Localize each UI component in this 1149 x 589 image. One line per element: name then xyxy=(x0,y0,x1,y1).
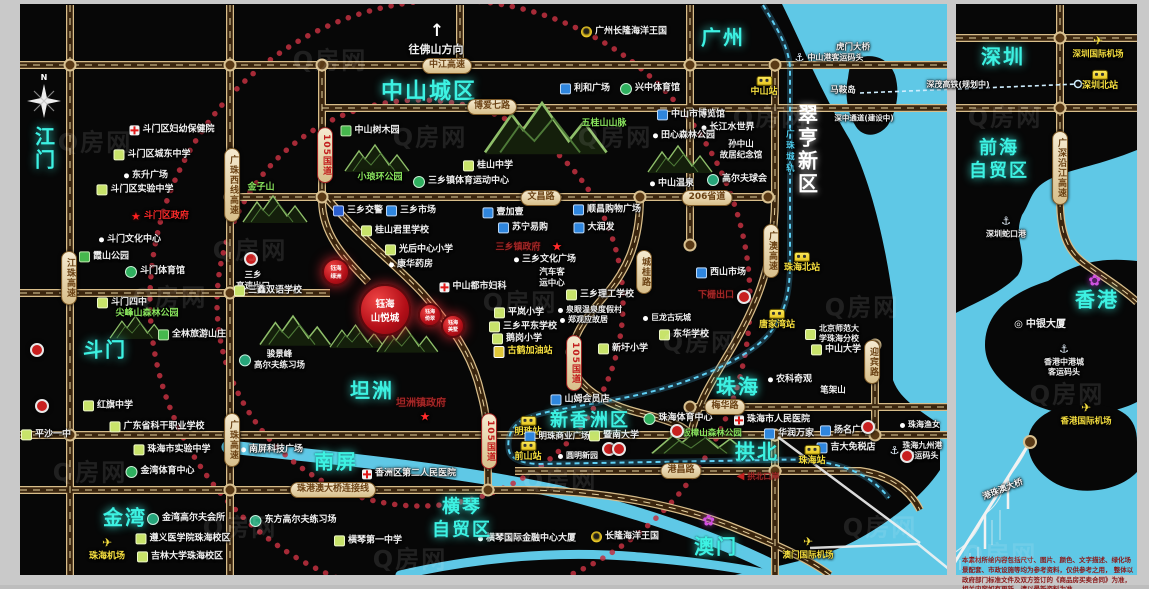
school-icon xyxy=(133,445,144,456)
poi-text: 下栅出口 xyxy=(698,290,734,301)
poi-label: ✿ xyxy=(702,512,718,531)
route-exit-badge xyxy=(612,442,626,456)
road-name-pill: 广珠高速 xyxy=(224,413,240,467)
watermark: Q房网 xyxy=(373,540,447,575)
school-icon xyxy=(83,401,94,412)
poi-label: ✈澳门国际机场 xyxy=(782,535,833,562)
watermark: Q房网 xyxy=(825,288,899,323)
poi-label: ◎中银大厦 xyxy=(1014,319,1066,332)
poi-label: 吉林大学珠海校区 xyxy=(137,551,223,562)
poi-text: 斗门区妇幼保健院 xyxy=(142,124,214,135)
poi-text: 顺昌购物广场 xyxy=(587,204,641,215)
watermark: Q房网 xyxy=(663,323,737,358)
road-name-pill: 206省道 xyxy=(682,190,733,206)
poi-label: 板樟山森林公园 xyxy=(682,429,742,440)
poi-label: 康华药房 xyxy=(389,259,433,270)
poi-label: 利和广场 xyxy=(560,83,610,94)
poi-label: 斗门区妇幼保健院 xyxy=(129,124,214,135)
poi-label: 港珠澳大桥 xyxy=(981,477,1024,503)
region-text: 新香洲区 xyxy=(550,410,630,433)
region-label: 珠海 xyxy=(716,375,760,400)
poi-label: 珠海市实验中学 xyxy=(133,444,210,455)
region-text: 金湾 xyxy=(103,506,147,531)
poi-text: 板樟山森林公园 xyxy=(682,429,742,440)
poi-label: 横琴国际金融中心大厦 xyxy=(478,533,576,544)
school-icon xyxy=(492,334,503,345)
poi-text: 香洲区第二人民医院 xyxy=(375,468,456,479)
poi-text: 红旗中学 xyxy=(97,400,133,411)
poi-text: 康华药房 xyxy=(397,259,433,270)
poi-label: 珠海渔女 xyxy=(900,420,940,430)
poi-text: 金湾体育中心 xyxy=(140,466,194,477)
school-icon xyxy=(97,298,108,309)
poi-text: 山姆会员店 xyxy=(564,394,609,405)
poi-label: 孙中山 故居纪念馆 xyxy=(720,139,763,160)
poi-label: 珠海站 xyxy=(798,445,825,467)
plane-icon: ✈ xyxy=(1093,34,1103,49)
poi-label: 光后中心小学 xyxy=(385,244,453,255)
poi-label: 三乡镇政府 xyxy=(495,242,540,253)
poi-text: 三乡镇体育运动中心 xyxy=(428,176,509,187)
sport-icon xyxy=(643,413,655,425)
poi-text: 圆明新园 xyxy=(566,451,598,461)
poi-text: 高尔夫球会 xyxy=(722,174,767,185)
plane-icon: ✈ xyxy=(102,535,112,550)
road-name-pill: 广深沿江高速 xyxy=(1052,131,1068,205)
train-icon xyxy=(794,252,810,262)
poi-label: e长隆海洋王国 xyxy=(591,531,659,542)
poi-text: 横琴国际金融中心大厦 xyxy=(486,533,576,544)
school-icon xyxy=(135,534,146,545)
train-icon xyxy=(769,309,785,319)
train-icon xyxy=(520,441,536,451)
poi-text: 广州长隆海洋王国 xyxy=(595,26,667,37)
watermark: Q房网 xyxy=(523,461,597,496)
poi-text: 全林旅游山庄 xyxy=(172,329,226,340)
poi-label: 北京师范大 学珠海分校 xyxy=(805,324,859,344)
poi-text: 南屏科技广场 xyxy=(249,444,303,455)
poi-text: 珠海体育中心 xyxy=(658,413,712,424)
school-icon xyxy=(805,329,816,340)
hosp-icon xyxy=(439,282,449,292)
poi-text: 珠海机场 xyxy=(89,551,125,562)
region-label: 中山城区 xyxy=(381,78,477,106)
school-icon xyxy=(234,286,245,297)
road-name-pill: 广珠西线高速 xyxy=(224,148,240,222)
poi-label: 金子山 xyxy=(247,182,274,193)
anchor-icon: ⚓ xyxy=(795,51,805,65)
poi-label: 霞山公园 xyxy=(79,251,129,262)
hosp-icon xyxy=(362,469,372,479)
poi-label: 深圳北站 xyxy=(1082,70,1118,92)
poi-text: 壹加壹 xyxy=(496,207,523,218)
school-icon xyxy=(334,536,345,547)
shop-icon xyxy=(573,205,584,216)
police-icon xyxy=(333,206,344,217)
region-label: 坦洲 xyxy=(350,379,394,404)
poi-text: 三乡文化广场 xyxy=(522,254,576,265)
ring-icon: ◎ xyxy=(1014,319,1023,332)
location-map: N ↑ 往佛山方向 本素材所绘内容包括尺寸、图片、颜色、文字描述、绿化场景配套、… xyxy=(0,0,1149,589)
poi-text: 农科奇观 xyxy=(776,374,812,385)
poi-label: 桂山中学 xyxy=(463,160,513,171)
poi-label: 鹅岗小学 xyxy=(492,333,542,344)
route-exit-badge xyxy=(861,420,875,434)
watermark: Q房网 xyxy=(968,98,1042,133)
school-icon xyxy=(385,245,396,256)
shop-icon xyxy=(386,206,397,217)
map-labels-layer: ↑ 往佛山方向 本素材所绘内容包括尺寸、图片、颜色、文字描述、绿化场景配套、市政… xyxy=(0,0,1149,589)
hosp-icon xyxy=(734,415,744,425)
sport-icon xyxy=(620,83,632,95)
dot-icon xyxy=(558,308,563,313)
poi-label: 三乡平东学校 xyxy=(489,321,557,332)
route-exit-badge xyxy=(30,343,44,357)
poi-label: 金湾体育中心 xyxy=(125,466,194,478)
road-name-pill: 广澳高速 xyxy=(763,224,779,278)
dot-icon xyxy=(650,182,655,187)
poi-label: 巨龙古玩城 xyxy=(643,313,691,323)
road-name-pill: 城桂路 xyxy=(636,250,652,294)
park-icon xyxy=(79,252,90,263)
poi-text: 巨龙古玩城 xyxy=(651,313,691,323)
poi-text: 鹅岗小学 xyxy=(506,333,542,344)
school-icon xyxy=(463,161,474,172)
poi-label: 兴中体育馆 xyxy=(620,83,680,95)
golf-icon xyxy=(239,354,251,366)
poi-text: 深圳北站 xyxy=(1082,81,1118,92)
poi-text: 中山港客运码头 xyxy=(807,53,863,63)
dot-icon xyxy=(560,318,565,323)
region-label: 新香洲区 xyxy=(550,410,630,433)
poi-label: 东升广场 xyxy=(124,170,168,181)
poi-text: 斗门区实验中学 xyxy=(110,184,173,195)
poi-text: 光后中心小学 xyxy=(399,244,453,255)
road-name-pill: 博爱七路 xyxy=(467,99,517,115)
poi-label: 下栅出口 xyxy=(698,290,734,301)
shop-icon xyxy=(696,268,707,279)
e-icon: e xyxy=(581,27,592,38)
poi-label: ★斗门区政府 xyxy=(131,210,189,224)
poi-text: 斗门文化中心 xyxy=(107,234,161,245)
region-text: 前海 自贸区 xyxy=(969,138,1029,183)
school-icon xyxy=(96,185,107,196)
dot-icon xyxy=(900,423,905,428)
sport-icon xyxy=(125,266,137,278)
poi-text: 珠海市人民医院 xyxy=(747,414,810,425)
poi-label: ✈深圳国际机场 xyxy=(1072,34,1123,61)
poi-text: 骏景峰 高尔夫练习场 xyxy=(254,349,305,370)
poi-label: 香洲区第二人民医院 xyxy=(362,468,456,479)
dot-icon xyxy=(514,258,519,263)
poi-label: 全林旅游山庄 xyxy=(158,329,226,340)
poi-label: 深茂高铁(规划中) xyxy=(926,80,989,90)
region-label: 金湾 xyxy=(103,506,147,531)
route-exit-badge xyxy=(900,449,914,463)
road-name-pill: 中江高速 xyxy=(422,58,472,74)
school-icon xyxy=(361,226,372,237)
dot-icon xyxy=(124,174,129,179)
watermark: Q房网 xyxy=(483,283,557,318)
route-exit-badge xyxy=(35,399,49,413)
poi-label: 田心森林公园 xyxy=(653,130,715,141)
poi-text: 中山温泉 xyxy=(658,178,694,189)
poi-label: 南屏科技广场 xyxy=(241,444,303,455)
poi-text: 斗门区城东中学 xyxy=(127,149,190,160)
poi-text: 马鞍岛 xyxy=(830,86,856,97)
poi-text: 深圳蛇口港 xyxy=(986,229,1026,239)
route-exit-badge xyxy=(670,424,684,438)
project-sub-marker: 钰海 绿洲 xyxy=(322,258,350,286)
poi-text: 兴中体育馆 xyxy=(635,83,680,94)
park-icon xyxy=(340,126,351,137)
road-name-pill: 江珠高速 xyxy=(61,251,77,305)
poi-label: 古鹤加油站 xyxy=(493,346,552,358)
poi-text: 斗门区政府 xyxy=(144,211,189,222)
poi-label: 珠海北站 xyxy=(784,252,820,274)
road-name-pill: 105国道 xyxy=(317,127,333,183)
region-label: 拱北 xyxy=(735,440,779,465)
poi-label: 中山站 xyxy=(750,76,777,98)
train-icon xyxy=(756,76,772,86)
poi-label: 西山市场 xyxy=(696,267,746,278)
poi-text: 桂山君里学校 xyxy=(375,225,429,236)
shop-icon xyxy=(573,223,584,234)
poi-text: 新圩小学 xyxy=(612,343,648,354)
poi-label: 中山温泉 xyxy=(650,178,694,189)
poi-text: 古鹤加油站 xyxy=(507,346,552,357)
poi-label: 三乡文化广场 xyxy=(514,254,576,265)
train-icon xyxy=(520,416,536,426)
poi-text: 中山市博览馆 xyxy=(671,109,725,120)
poi-label: e广州长隆海洋王国 xyxy=(581,26,667,37)
sport-icon xyxy=(413,176,425,188)
region-text: 澳门 xyxy=(694,535,738,560)
road-name-pill: 迎宾路 xyxy=(864,340,880,384)
school-icon xyxy=(566,290,577,301)
direction-label: 往佛山方向 xyxy=(409,43,464,57)
poi-text: 三乡市场 xyxy=(400,205,436,216)
poi-text: 苏宁易购 xyxy=(512,222,548,233)
train-icon xyxy=(1092,70,1108,80)
train-icon xyxy=(804,445,820,455)
poi-label: 泉眼温泉度假村 xyxy=(558,305,622,315)
poi-label: 中山市博览馆 xyxy=(657,109,725,120)
road-name-pill: 105国道 xyxy=(566,335,582,391)
watermark: Q房网 xyxy=(1030,375,1104,410)
poi-text: 珠海站 xyxy=(798,456,825,467)
region-text: 江门 xyxy=(31,126,56,172)
star-icon: ★ xyxy=(131,210,141,224)
region-text: 珠海 xyxy=(716,375,760,400)
poi-label: 斗门体育馆 xyxy=(125,266,185,278)
poi-label: 农科奇观 xyxy=(768,374,812,385)
poi-text: 田心森林公园 xyxy=(661,130,715,141)
school-icon xyxy=(598,344,609,355)
poi-text: 利和广场 xyxy=(574,83,610,94)
road-name-pill: 珠港澳大桥连接线 xyxy=(290,482,376,498)
poi-label: 顺昌购物广场 xyxy=(573,204,641,215)
shop-icon xyxy=(820,426,831,437)
shop-icon xyxy=(498,223,509,234)
dot-icon xyxy=(653,134,658,139)
watermark: Q房网 xyxy=(203,508,277,543)
poi-label: 红旗中学 xyxy=(83,400,133,411)
region-text: 深圳 xyxy=(981,45,1025,70)
watermark: Q房网 xyxy=(578,118,652,153)
poi-label: 深中通道(建设中) xyxy=(834,113,893,122)
watermark: Q房网 xyxy=(963,535,1037,570)
watermark: Q房网 xyxy=(213,231,287,266)
poi-label: 华润万家 xyxy=(764,428,814,439)
poi-label: 郑观应故居 xyxy=(560,315,608,325)
anchor-icon: ⚓ xyxy=(1059,343,1069,357)
school-icon xyxy=(137,552,148,563)
poi-text: 斗门体育馆 xyxy=(140,266,185,277)
region-label: 前海 自贸区 xyxy=(969,138,1029,183)
watermark: Q房网 xyxy=(843,508,917,543)
poi-label: 山姆会员店 xyxy=(550,394,609,405)
arrowL-icon: ◀ xyxy=(737,471,745,484)
poi-text: 拱北口岸 xyxy=(747,472,779,482)
project-sub-marker: 钰海 倚翠 xyxy=(418,303,442,327)
poi-text: 中银大厦 xyxy=(1026,319,1066,332)
poi-text: 三乡镇政府 xyxy=(495,242,540,253)
poi-text: 珠海北站 xyxy=(784,263,820,274)
watermark: Q房网 xyxy=(733,98,807,133)
school-icon xyxy=(109,422,120,433)
poi-text: 三乡交警 xyxy=(347,205,383,216)
shop-icon xyxy=(482,208,493,219)
watermark: Q房网 xyxy=(133,278,207,313)
dot-icon xyxy=(389,263,394,268)
poi-text: 吉林大学珠海校区 xyxy=(151,551,223,562)
poi-label: 斗门文化中心 xyxy=(99,234,161,245)
poi-label: 唐家湾站 xyxy=(759,309,795,331)
road-name-pill: 港昌路 xyxy=(660,463,701,479)
region-label: 广州 xyxy=(701,26,745,51)
poi-text: 三乡理工学校 xyxy=(580,289,634,300)
poi-text: 泉眼温泉度假村 xyxy=(566,305,622,315)
school-icon xyxy=(811,345,822,356)
region-text: 香港 xyxy=(1075,288,1119,313)
gas-icon xyxy=(493,346,504,358)
region-label: 南屏 xyxy=(314,450,358,475)
region-text: 广州 xyxy=(701,26,745,51)
region-label: 香港 xyxy=(1075,288,1119,313)
poi-text: 唐家湾站 xyxy=(759,320,795,331)
poi-label: ⚓珠海九州港 客运码头 xyxy=(890,441,943,461)
poi-label: 新圩小学 xyxy=(598,343,648,354)
poi-label: 中山大学 xyxy=(811,344,861,355)
region-text: 拱北 xyxy=(735,440,779,465)
poi-label: 三乡镇体育运动中心 xyxy=(413,176,509,188)
poi-text: 港珠澳大桥 xyxy=(981,477,1024,503)
poi-text: 金子山 xyxy=(247,182,274,193)
poi-text: 香港国际机场 xyxy=(1060,417,1111,428)
poi-label: 马鞍岛 xyxy=(830,86,856,97)
poi-label: 圆明新园 xyxy=(558,451,598,461)
poi-text: 深中通道(建设中) xyxy=(834,113,893,122)
poi-label: ⚓深圳蛇口港 xyxy=(986,215,1026,240)
region-label: 澳门 xyxy=(694,535,738,560)
poi-text: 深茂高铁(规划中) xyxy=(926,80,989,90)
region-text: 斗门 xyxy=(83,338,127,363)
shop-icon xyxy=(550,395,561,406)
poi-text: 珠海渔女 xyxy=(908,420,940,430)
plane-icon: ✈ xyxy=(803,535,813,550)
poi-label: 桂山君里学校 xyxy=(361,225,429,236)
park-icon xyxy=(158,330,169,341)
road-name-pill: 梅华路 xyxy=(704,399,745,415)
region-text: 南屏 xyxy=(314,450,358,475)
poi-text: 霞山公园 xyxy=(93,251,129,262)
region-text: 中山城区 xyxy=(381,78,477,106)
project-main-marker: 钰海 山悦城 xyxy=(359,284,411,336)
poi-label: 广东省科干职业学校 xyxy=(109,421,204,432)
poi-text: 三鑫双语学校 xyxy=(248,285,302,296)
poi-label: ⚓香港中港城 客运码头 xyxy=(1044,343,1084,378)
region-label: 江门 xyxy=(31,126,56,172)
poi-label: 平沙一中 xyxy=(21,429,71,440)
poi-text: 中山大学 xyxy=(825,344,861,355)
poi-label: 珠海市人民医院 xyxy=(734,414,810,425)
poi-label: ⚓中山港客运码头 xyxy=(795,51,864,65)
poi-text: 坦洲镇政府 xyxy=(396,398,446,411)
region-label: 深圳 xyxy=(981,45,1025,70)
watermark: Q房网 xyxy=(53,453,127,488)
poi-text: 笔架山 xyxy=(820,386,846,397)
golf-icon xyxy=(147,513,159,525)
project-sub-marker: 钰海 美墅 xyxy=(441,314,465,338)
dot-icon xyxy=(241,448,246,453)
watermark: Q房网 xyxy=(393,118,467,153)
poi-label: 高尔夫球会 xyxy=(707,174,767,186)
dot-icon xyxy=(99,238,104,243)
poi-text: 珠海市实验中学 xyxy=(147,444,210,455)
poi-text: ★ xyxy=(552,240,563,255)
region-label: 斗门 xyxy=(83,338,127,363)
poi-text: 郑观应故居 xyxy=(568,315,608,325)
poi-text: 东升广场 xyxy=(132,170,168,181)
poi-label: 苏宁易购 xyxy=(498,222,548,233)
poi-text: 长隆海洋王国 xyxy=(605,531,659,542)
dot-icon xyxy=(643,316,648,321)
poi-label: ✈珠海机场 xyxy=(89,535,125,562)
poi-label: 三乡交警 xyxy=(333,205,383,216)
watermark: Q房网 xyxy=(58,123,132,158)
poi-label: 三鑫双语学校 xyxy=(234,285,302,296)
school-icon xyxy=(489,322,500,333)
shop-icon xyxy=(764,429,775,440)
road-name-pill: 文昌路 xyxy=(520,190,561,206)
route-exit-badge xyxy=(737,290,751,304)
poi-text: 明珠商业广场 xyxy=(538,432,589,443)
poi-text: 澳门国际机场 xyxy=(782,551,833,562)
dot-icon xyxy=(558,454,563,459)
poi-text: 深圳国际机场 xyxy=(1072,50,1123,61)
poi-label: 壹加壹 xyxy=(482,207,523,218)
shop-icon xyxy=(560,84,571,95)
poi-text: 孙中山 故居纪念馆 xyxy=(720,139,763,160)
flower-icon: ✿ xyxy=(702,512,715,531)
poi-label: ★ xyxy=(552,240,563,255)
poi-label: 中山树木园 xyxy=(340,125,399,136)
golf-icon xyxy=(707,174,719,186)
region-text: 坦洲 xyxy=(350,379,394,404)
north-direction-arrow: ↑ xyxy=(430,21,444,41)
poi-text: 西山市场 xyxy=(710,267,746,278)
